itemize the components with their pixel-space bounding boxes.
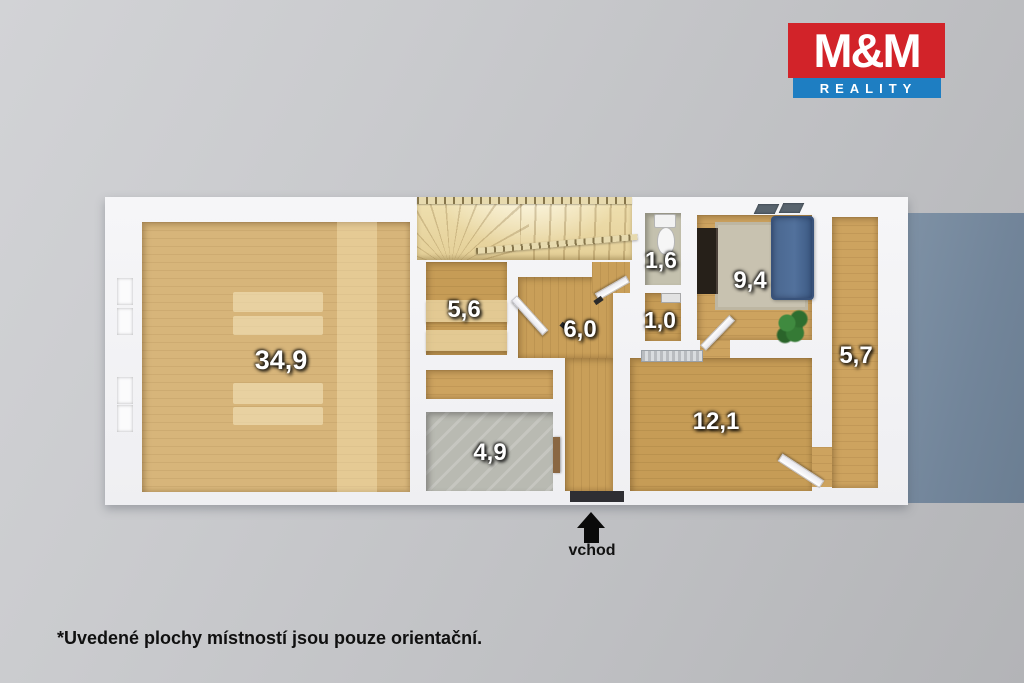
plant-icon: [773, 307, 813, 347]
window-icon: [117, 377, 133, 404]
window-icon: [117, 278, 133, 305]
wall-vent-icon: [779, 203, 805, 213]
area-disclaimer: *Uvedené plochy místností jsou pouze ori…: [57, 628, 482, 649]
sink-icon: [661, 293, 681, 303]
room-area-label: 34,9: [236, 345, 326, 375]
room-area-label: 5,6: [419, 295, 509, 325]
room-area-label: 1,0: [615, 305, 705, 335]
toilet-tank-icon: [654, 214, 676, 228]
room-34-9-light-bar: [233, 316, 323, 335]
radiator-icon: [641, 350, 703, 362]
stair-step: [426, 330, 507, 351]
entrance-doormat: [570, 491, 624, 502]
window-icon: [117, 308, 133, 335]
room-area-label: 12,1: [671, 407, 761, 437]
screenshot-canvas: M&M REALITY: [0, 0, 1024, 683]
entrance-label: vchod: [552, 542, 632, 560]
room-area-label: 1,6: [616, 245, 706, 275]
staircase: [417, 199, 632, 260]
room-34-9-light-strip: [337, 222, 377, 492]
window-icon: [117, 405, 133, 432]
room-34-9-light-bar: [233, 383, 323, 404]
entrance-arrow-icon: [577, 512, 605, 528]
entrance-arrow-icon: [584, 527, 599, 543]
room-area-label: 5,7: [811, 341, 901, 371]
mm-reality-logo-subtitle: REALITY: [793, 78, 941, 98]
bathroom-door: [553, 437, 560, 473]
hallway-corridor-floor: [565, 358, 613, 491]
mm-reality-logo: M&M: [788, 23, 945, 78]
room-34-9-light-bar: [233, 292, 323, 312]
plan-cast-shadow: [908, 213, 1024, 503]
room-area-label: 6,0: [535, 315, 625, 345]
stair-railing-top: [417, 197, 632, 204]
niche-floor: [426, 370, 553, 399]
room-area-label: 9,4: [705, 266, 795, 296]
wall-vent-icon: [754, 204, 780, 214]
room-34-9-light-bar: [233, 407, 323, 425]
floor-plan: 34,9 5,6 6,0 1,6 1,0 9,4 5,7 12,1 4,9: [105, 197, 908, 505]
room-area-label: 4,9: [445, 438, 535, 468]
